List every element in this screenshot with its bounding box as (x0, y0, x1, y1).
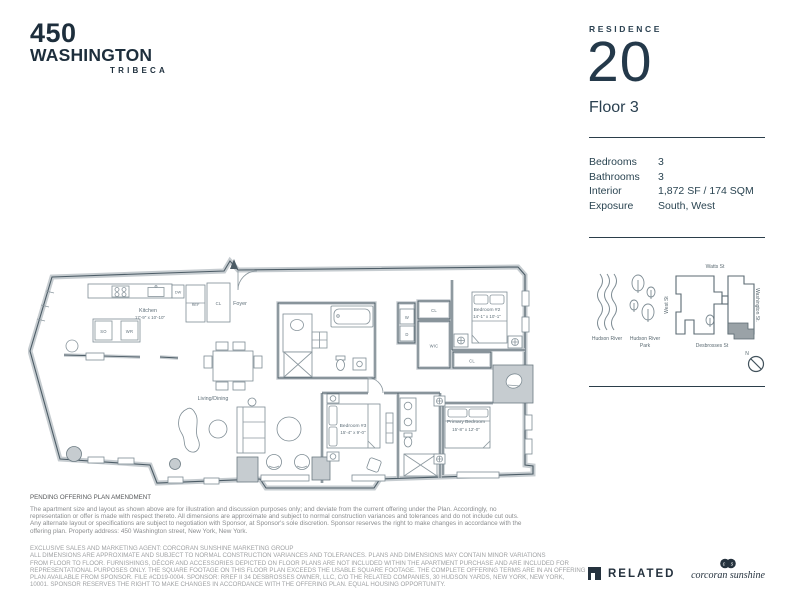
related-mark-icon (588, 567, 601, 580)
floor-lamp (170, 459, 181, 470)
detail-label: Bathrooms (589, 170, 658, 185)
divider (589, 386, 765, 387)
bedroom2-furniture (454, 292, 522, 348)
primary-bathroom-fixtures (400, 398, 437, 476)
bedroom3-dims: 15'-4" x 9'-0" (340, 430, 366, 435)
coffee-table (209, 420, 227, 438)
building-footprint (676, 276, 754, 339)
toilet-icon (337, 360, 345, 371)
wine-ref-label: WR (126, 329, 133, 334)
related-wordmark: RELATED (608, 568, 675, 580)
side-table (248, 398, 256, 406)
dishwasher-label: DW (175, 291, 182, 295)
dining-table (213, 351, 253, 381)
bedroom3-label: Bedroom #3 (340, 423, 367, 429)
detail-value: 3 (658, 170, 664, 185)
dining-chair (254, 356, 262, 368)
hall-bathroom-fixtures (283, 306, 373, 377)
detail-label: Interior (589, 184, 658, 199)
chair-icon (366, 457, 381, 472)
corcoran-sunshine-logo: c s corcoran sunshine (688, 558, 768, 581)
interior-walls (64, 280, 525, 483)
map-label-park-1: Hudson River (630, 336, 661, 342)
legal-disclaimer: EXCLUSIVE SALES AND MARKETING AGENT: COR… (30, 545, 586, 589)
detail-row: Bathrooms 3 (589, 170, 754, 185)
detail-value: South, West (658, 199, 715, 214)
detail-label: Exposure (589, 199, 658, 214)
dresser (386, 413, 393, 443)
legal-paragraph: The apartment size and layout as shown a… (30, 506, 521, 535)
closet-label: CL (431, 308, 437, 313)
corcoran-wordmark: corcoran sunshine (688, 570, 768, 581)
foyer-label: Foyer (233, 301, 247, 307)
wic-label: WIC (430, 344, 439, 349)
wall-pier (237, 457, 258, 482)
residence-details: Bedrooms 3 Bathrooms 3 Interior 1,872 SF… (589, 155, 754, 213)
residence-location-highlight (728, 323, 754, 339)
bedroom2-label: Bedroom #2 (474, 307, 501, 313)
legal-line: The apartment size and layout as shown a… (30, 506, 521, 513)
kitchen-label: Kitchen (139, 308, 157, 314)
primary-bedroom-furniture (434, 371, 524, 464)
washer-label: W (405, 315, 409, 320)
legal-line: 10001. SPONSOR RESERVES THE RIGHT TO MAK… (30, 581, 586, 588)
kitchen-counter (88, 284, 172, 298)
legal-line: offering plan. Property address: 450 Was… (30, 528, 521, 535)
legal-line: FROM FLOOR TO FLOOR. FURNISHINGS, DÉCOR … (30, 560, 586, 567)
primary-bedroom-label: Primary Bedroom (447, 419, 485, 425)
dining-chair (233, 342, 245, 350)
north-compass-icon: N (745, 351, 763, 372)
bedroom2-dims: 14'-1" x 10'-1" (473, 314, 501, 319)
legal-line: Any alternate layout or specifications a… (30, 520, 521, 527)
legal-line: EXCLUSIVE SALES AND MARKETING AGENT: COR… (30, 545, 586, 552)
building-logo: 450 WASHINGTON TRIBECA (30, 20, 170, 75)
detail-label: Bedrooms (589, 155, 658, 170)
chaise-icon (179, 408, 200, 452)
map-label-watts: Watts St (706, 264, 725, 270)
dining-chair (216, 342, 228, 350)
park-trees-icon (630, 275, 714, 327)
living-dining-furniture (67, 342, 310, 470)
map-label-washington: Washington St. (754, 288, 760, 322)
toilet-icon (404, 437, 412, 447)
residence-number: 20 (587, 33, 652, 91)
legal-heading: PENDING OFFERING PLAN AMENDMENT (30, 494, 151, 501)
legal-line: ALL DIMENSIONS ARE APPROXIMATE AND SUBJE… (30, 552, 586, 559)
cafe-table-icon (66, 340, 78, 352)
divider (589, 137, 765, 138)
logo-name: WASHINGTON (30, 46, 170, 65)
related-logo: RELATED (588, 567, 675, 580)
speed-oven-label: SO (100, 329, 107, 334)
compass-n: N (745, 351, 749, 357)
kitchen-dims: 17'-9" x 10'-10" (135, 315, 166, 320)
detail-row: Interior 1,872 SF / 174 SQM (589, 184, 754, 199)
map-label-hudson-river: Hudson River (592, 336, 623, 342)
legal-line: REPRESENTATIONAL PURPOSES ONLY. THE SQUA… (30, 567, 586, 574)
dryer-label: D (405, 332, 408, 337)
dining-chair (233, 382, 245, 390)
dining-chair (204, 356, 212, 368)
river-waves-icon (598, 274, 617, 330)
map-label-west: West St (664, 296, 670, 314)
residence-floor: Floor 3 (589, 99, 639, 117)
logo-number: 450 (30, 20, 170, 46)
planter (67, 447, 82, 462)
detail-row: Bedrooms 3 (589, 155, 754, 170)
living-dining-label: Living/Dining (198, 396, 229, 402)
map-label-desbrosses: Desbrosses St (696, 343, 729, 349)
logo-neighborhood: TRIBECA (30, 66, 170, 75)
detail-value: 3 (658, 155, 664, 170)
floorplan-brochure-page: 450 WASHINGTON TRIBECA RESIDENCE 20 Floo… (0, 0, 792, 612)
map-label-park-2: Park (640, 343, 651, 349)
detail-value: 1,872 SF / 174 SQM (658, 184, 754, 199)
corcoran-mark-icon: c s (717, 558, 739, 569)
legal-line: PLAN AVAILABLE FROM SPONSOR. FILE #CD19-… (30, 574, 586, 581)
closet-label: CL (216, 301, 222, 306)
location-map: Hudson River Hudson River Park Watts St … (588, 250, 768, 390)
divider (589, 237, 765, 238)
floor-plan: Kitchen 17'-9" x 10'-10" Foyer Living/Di… (28, 255, 558, 505)
primary-bedroom-dims: 15'-8" x 12'-0" (452, 427, 480, 432)
dining-chair (216, 382, 228, 390)
sofa-icon (237, 407, 265, 453)
detail-row: Exposure South, West (589, 199, 754, 214)
round-table (277, 417, 301, 441)
bedroom3-door-swing (368, 378, 383, 393)
closet-label: CL (469, 359, 475, 364)
entry-door-swing (238, 271, 257, 290)
refrigerator-label: REF (192, 303, 200, 307)
legal-line: representation or offer is made with res… (30, 513, 521, 520)
